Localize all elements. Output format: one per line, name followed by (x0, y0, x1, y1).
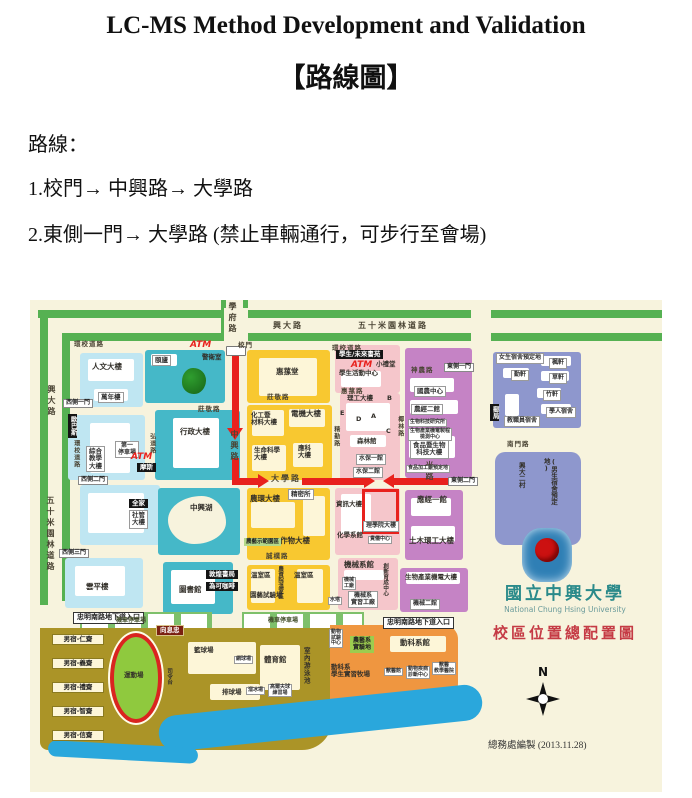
map-label: 應科 大樓 (298, 445, 311, 460)
map-label: 東側一門 (444, 363, 474, 372)
route-step-2: 2.東側一門→ 大學路 (禁止車輛通行，可步行至會場) (28, 218, 486, 247)
map-label: 西側三門 (59, 549, 89, 558)
map-label: 動科系 學生實習牧場 (331, 664, 370, 679)
map-label: ATM (131, 452, 152, 462)
road-daxue: 大學路 (271, 475, 301, 484)
road-50m-top: 五十米園林道路 (358, 322, 428, 331)
map-label: 社管 大樓 (129, 510, 148, 529)
map-label: 雲平樓 (86, 583, 109, 591)
map-label: 西側二門 (78, 476, 108, 485)
map-label: 網球場 (234, 656, 253, 664)
map-label: 溜冰場 (246, 687, 265, 695)
road-ring-nw: 環校道路 (74, 341, 104, 348)
map-label: 創新育成中心 (382, 563, 388, 596)
map-label: 女生宿舍預定地 (496, 353, 544, 364)
map-label: 楓軒 (549, 358, 567, 369)
map-label: 教職員宿舍 (504, 416, 540, 427)
map-label: 歐巴斯 (68, 414, 77, 438)
map-label: 獸醫館 (384, 668, 403, 676)
university-name-en: National Chung Hsing University (480, 606, 650, 614)
map-label: 園藝試驗場 (250, 592, 283, 599)
map-label: 全家 (129, 499, 148, 508)
map-label: 竹軒 (543, 390, 561, 401)
page-subtitle: 【路線圖】 (0, 56, 692, 95)
venue-building-label: 理學院大樓 (363, 521, 399, 532)
map-label: 誠樸路 (266, 553, 289, 560)
map-label: 學人宿舍 (546, 407, 576, 418)
map-label: D (356, 416, 361, 423)
road-zhongxing: 中興路 (229, 430, 238, 463)
map-label: 椰林路 (396, 416, 403, 437)
map-label: 男宿-智齋 (52, 706, 104, 717)
map-label: 精勤路 (332, 426, 339, 447)
map-label: 南門路 (507, 441, 530, 448)
map-label: 食品暨生物 科技大樓 (410, 440, 449, 459)
map-label: 敦煌書局 (206, 570, 238, 579)
map-label: 水塔 (328, 597, 342, 605)
road-xuefu: 學府路 (227, 302, 236, 335)
map-label: 貴儀中心 (368, 536, 392, 544)
xingda-village: 興大二村 (517, 462, 524, 514)
map-label: (男生宿舍預定地) (542, 458, 557, 510)
map-label: 電機大樓 (291, 410, 321, 418)
map-label: 農環大樓 (250, 495, 280, 503)
sports-field-label: 運動場 (124, 672, 144, 679)
map-label: 動物疾病 診斷中心 (406, 666, 430, 679)
map-label: 生物產業機電大樓 (405, 574, 457, 581)
map-label: 土木環工大樓 (409, 537, 454, 545)
map-label: 農藝系 實驗地 (350, 636, 374, 653)
map-label: 西側一門 (63, 399, 93, 408)
map-label: 機械二館 (410, 599, 440, 610)
road-xingda-top: 興大路 (273, 322, 303, 331)
campus-map: 學府路興大路五十米園林道路環校道路環校道路校門ATM警衛室興大路五十米園林道路中… (30, 300, 662, 792)
map-label: 動科系館 (400, 639, 430, 647)
map-label: 應經一館 (417, 496, 447, 504)
map-label: 警衛室 (202, 354, 222, 361)
compass-north-label: N (538, 666, 548, 679)
map-label: 水保一館 (356, 454, 386, 465)
map-label: 莊敬路 (267, 394, 290, 401)
map-label: 中興湖 (190, 504, 213, 512)
map-label: 機械系館 (344, 561, 374, 569)
map-label: 小禮堂 (376, 361, 396, 368)
map-label: 室內游泳池 (302, 647, 309, 685)
map-label: 機械系 實習工廠 (348, 591, 378, 608)
map-label: 向息忠 (156, 625, 184, 636)
map-label: 男宿-義齋 (52, 658, 104, 669)
map-label: 化學系館 (337, 532, 363, 539)
map-label: 水保二館 (353, 467, 383, 478)
map-label: 溫室區 (251, 572, 271, 579)
map-label: ATM (190, 340, 211, 350)
main-gate-label: 校門 (238, 342, 253, 349)
route-step-1: 1.校門→ 中興路→ 大學路 (28, 172, 253, 201)
map-label: 圖書館 (179, 586, 202, 594)
map-label: 農藝示範園區 (244, 538, 281, 546)
map-label: 高爾夫球 練習場 (268, 684, 292, 697)
map-label: 機械 工廠 (342, 577, 356, 590)
map-label: 農經二館 (411, 404, 443, 415)
map-label: 男宿-仁齋 (52, 634, 104, 645)
map-label: 惠蓀堂 (276, 368, 299, 376)
map-label: 機車停車場 (268, 618, 298, 625)
map-label: 機車停車場 (116, 618, 146, 625)
map-label: A (371, 413, 376, 420)
map-label: 學生/未來書苑 (336, 350, 383, 359)
map-label: 環校道路 (72, 440, 79, 468)
map-label: 東側二門 (448, 477, 478, 486)
map-label: 行政大樓 (180, 428, 210, 436)
map-label: 摩斯 (137, 463, 156, 472)
map-label: 資訊大樓 (336, 501, 362, 508)
map-label: 動物 試驗 中心 (329, 629, 343, 648)
map-label: 森林館 (357, 438, 377, 445)
map-label: 理工大樓 (347, 395, 373, 402)
map-label: 綜合 教學 大樓 (86, 446, 105, 472)
map-label: 食品加工廠預定地 (406, 465, 450, 473)
map-label: 化工暨 材料大樓 (251, 412, 277, 427)
map-label: C (386, 428, 391, 435)
map-label: 男宿-禮齋 (52, 682, 104, 693)
map-label: 勤軒 (511, 370, 529, 381)
route-heading: 路線： (28, 128, 88, 157)
map-label: 弘道路 (148, 433, 155, 454)
map-label: B (387, 395, 392, 402)
map-label: 為可咖啡 (206, 582, 238, 591)
university-name: 國立中興大學 (480, 584, 650, 603)
map-label: 籃球場 (194, 647, 214, 654)
map-title: 校區位置總配置圖 (475, 625, 655, 642)
map-label: 生物科技研究所 (408, 419, 447, 427)
map-label: E (340, 410, 344, 417)
map-label: 頤廬 (152, 355, 171, 366)
map-label: 溫室區 (294, 572, 314, 579)
page-title: LC-MS Method Development and Validation (0, 12, 692, 40)
road-xingda-left: 興大路 (46, 385, 55, 418)
map-label: 郵局 (490, 404, 499, 421)
map-label: 司令台 (166, 668, 172, 685)
map-label: 精密所 (288, 489, 314, 500)
map-label: 作物大樓 (280, 537, 310, 545)
map-credit: 總務處編製 (2013.11.28) (488, 741, 587, 752)
map-label: 莊敬路 (198, 406, 221, 413)
map-label: 神農路 (411, 367, 434, 374)
map-label: 生命科學 大樓 (254, 447, 280, 462)
map-label: 草軒 (549, 373, 567, 384)
map-label: 忠明南路地下道入口 (383, 617, 454, 629)
map-label: 獸醫 教學醫院 (432, 662, 456, 675)
map-label: 學生活動中心 (339, 370, 378, 377)
map-labels: 學府路興大路五十米園林道路環校道路環校道路校門ATM警衛室興大路五十米園林道路中… (30, 300, 662, 792)
map-label: 國農中心 (414, 386, 446, 397)
map-label: 男宿-信齋 (52, 730, 104, 741)
map-label: 體育館 (264, 656, 287, 664)
map-label: 排球場 (222, 689, 242, 696)
road-50m-left: 五十米園林道路 (45, 496, 54, 573)
map-label: 萬年樓 (98, 392, 124, 403)
map-label: 人文大樓 (92, 363, 122, 371)
document-page: LC-MS Method Development and Validation … (0, 0, 692, 798)
